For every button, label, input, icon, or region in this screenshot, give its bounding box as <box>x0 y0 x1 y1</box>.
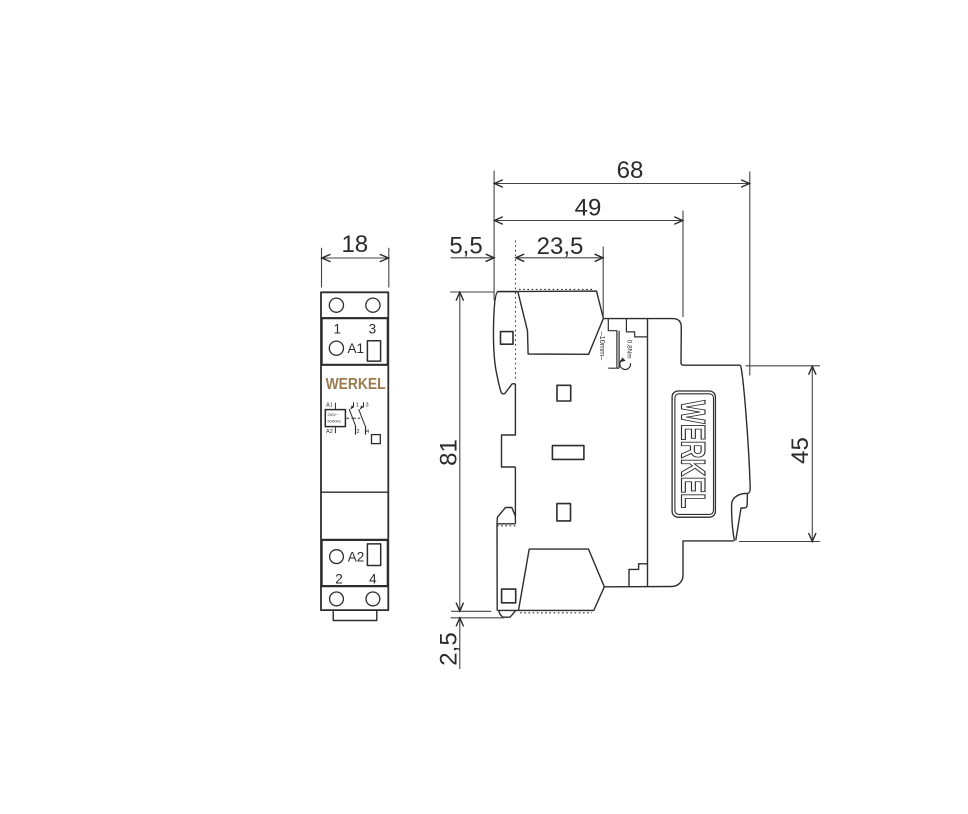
svg-text:1: 1 <box>334 321 342 336</box>
svg-text:WERKEL: WERKEL <box>326 376 386 393</box>
svg-text:A1: A1 <box>326 403 333 409</box>
svg-text:68: 68 <box>617 157 644 184</box>
svg-text:A2: A2 <box>326 429 333 435</box>
svg-text:A1: A1 <box>348 341 365 356</box>
svg-text:–10mm–: –10mm– <box>598 332 607 362</box>
svg-text:3: 3 <box>366 403 369 409</box>
svg-text:45: 45 <box>787 437 814 464</box>
svg-text:4: 4 <box>369 571 377 586</box>
svg-text:4: 4 <box>366 429 369 435</box>
svg-text:81: 81 <box>436 439 463 466</box>
svg-text:2: 2 <box>335 571 343 586</box>
svg-text:3: 3 <box>369 321 377 336</box>
svg-text:5,5: 5,5 <box>449 233 482 260</box>
svg-text:WERKEL: WERKEL <box>673 400 711 508</box>
svg-text:0.8Nm: 0.8Nm <box>626 340 633 359</box>
svg-text:23,5: 23,5 <box>537 233 584 260</box>
svg-text:18: 18 <box>341 231 368 258</box>
svg-text:A2: A2 <box>348 549 365 564</box>
svg-text:50/60Hz: 50/60Hz <box>328 420 342 424</box>
svg-text:49: 49 <box>575 195 602 222</box>
svg-text:2: 2 <box>357 429 360 435</box>
svg-text:1: 1 <box>356 403 359 409</box>
svg-text:2,5: 2,5 <box>436 632 463 665</box>
svg-text:230V~: 230V~ <box>328 413 339 417</box>
